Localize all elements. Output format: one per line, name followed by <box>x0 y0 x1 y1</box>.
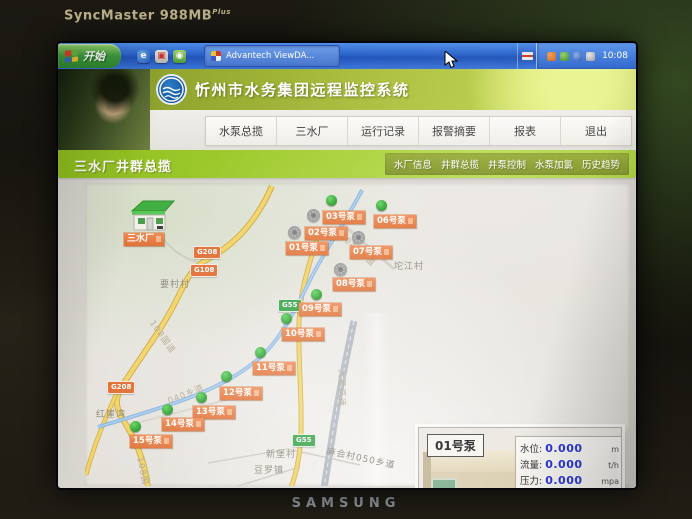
water-group-logo <box>158 76 185 103</box>
section-title: 三水厂井群总揽 <box>74 156 172 175</box>
nav-bar: 水泵总揽三水厂运行记录报警摘要报表退出 <box>150 110 636 150</box>
well-tree-icon[interactable] <box>255 347 266 358</box>
pump-gear-icon[interactable] <box>334 263 347 276</box>
pump-badge-4[interactable]: 06号泵 <box>374 215 416 228</box>
quick-launch-bar: e ▣ ◉ <box>137 50 186 63</box>
tab-5[interactable]: 报表 <box>490 117 561 145</box>
pump-gear-icon[interactable] <box>352 231 365 244</box>
taskbar-clock: 10:08 <box>602 51 628 61</box>
well-tree-icon[interactable] <box>130 421 141 432</box>
pump-detail-panel: 01号泵 水位:0.000m流量:0.000t/h压力:0.000mpa 泵状态… <box>418 427 622 488</box>
room-wall-left <box>423 452 431 488</box>
road-badge-G55: G55 <box>292 434 316 447</box>
pump-badge-10[interactable]: 12号泵 <box>220 387 262 400</box>
taskbar-right: 10:08 <box>517 43 636 69</box>
data-row-unit: t/h <box>608 461 619 470</box>
pump-badge-1[interactable]: 01号泵 <box>286 242 328 255</box>
monitor-brand: SyncMaster 988MBPlus <box>64 8 231 23</box>
data-row: 水位:0.000m <box>520 441 619 455</box>
tray-icon-2[interactable] <box>560 52 569 61</box>
pump-badge-12[interactable]: 14号泵 <box>162 418 204 431</box>
well-tree-icon[interactable] <box>326 195 337 206</box>
monitor-screen: 开始 e ▣ ◉ Advantech ViewDA... 10:08 <box>58 43 636 488</box>
place-label: 豆罗镇 <box>254 463 284 476</box>
water-plant-icon[interactable] <box>130 198 176 236</box>
advantech-app-icon <box>211 51 221 61</box>
road-badge-G208: G208 <box>107 381 135 394</box>
place-label: 坨江村 <box>394 259 424 272</box>
system-tray: 10:08 <box>536 43 636 69</box>
data-row-label: 流量: <box>520 457 542 471</box>
room-door <box>431 478 457 488</box>
plant-label[interactable]: 三水厂 <box>124 233 164 246</box>
content-area: 三水厂 108国道108国道040乡道040乡道大运高速要村村坨江村红崖湾新堡村… <box>58 178 636 488</box>
tab-6[interactable]: 退出 <box>561 117 631 145</box>
subnav-link-5[interactable]: 历史趋势 <box>582 157 620 171</box>
pump-badge-3[interactable]: 03号泵 <box>323 211 365 224</box>
browser-icon[interactable]: e <box>137 50 150 63</box>
taskbar-button-label: Advantech ViewDA... <box>226 51 314 61</box>
language-bar-icon[interactable] <box>517 43 536 69</box>
windows-taskbar: 开始 e ▣ ◉ Advantech ViewDA... 10:08 <box>58 43 636 69</box>
subnav-links: 水厂信息井群总揽井泵控制水泵加氯历史趋势 <box>385 153 629 175</box>
well-tree-icon[interactable] <box>196 392 207 403</box>
pump-badge-6[interactable]: 08号泵 <box>333 278 375 291</box>
tab-3[interactable]: 运行记录 <box>348 117 419 145</box>
pump-gear-icon[interactable] <box>307 209 320 222</box>
data-row: 流量:0.000t/h <box>520 457 619 471</box>
subnav-link-4[interactable]: 水泵加氯 <box>535 157 573 171</box>
data-row: 压力:0.000mpa <box>520 473 619 487</box>
road-badge-G108: G108 <box>190 264 218 277</box>
place-label: 麻会村050乡道 <box>325 444 396 471</box>
data-row-label: 压力: <box>520 473 542 487</box>
app-banner: 忻州市水务集团远程监控系统 <box>150 69 636 110</box>
pump-badge-11[interactable]: 13号泵 <box>193 406 235 419</box>
road-name-label: 108国道 <box>134 456 154 486</box>
tab-2[interactable]: 三水厂 <box>277 117 348 145</box>
pump-badge-5[interactable]: 07号泵 <box>350 246 392 259</box>
banner-photo <box>58 69 150 150</box>
road-name-label: 108国道 <box>147 318 179 356</box>
subnav-link-1[interactable]: 水厂信息 <box>394 157 432 171</box>
place-label: 要村村 <box>160 277 190 290</box>
taskbar-button-advantech[interactable]: Advantech ViewDA... <box>204 45 340 67</box>
start-button[interactable]: 开始 <box>58 44 121 68</box>
data-row-value: 0.000 <box>545 442 582 455</box>
tray-icon-3[interactable] <box>573 52 582 61</box>
subnav-bar: 三水厂井群总揽 水厂信息井群总揽井泵控制水泵加氯历史趋势 <box>58 150 636 178</box>
quicklaunch-icon-3[interactable]: ◉ <box>173 50 186 63</box>
data-row-value: 0.000 <box>545 474 582 487</box>
well-tree-icon[interactable] <box>311 289 322 300</box>
start-button-label: 开始 <box>83 48 105 64</box>
tray-icon-1[interactable] <box>547 52 556 61</box>
pump-badge-9[interactable]: 11号泵 <box>253 362 295 375</box>
pump-panel-title: 01号泵 <box>427 434 484 457</box>
pump-metrics: 水位:0.000m流量:0.000t/h压力:0.000mpa <box>515 436 622 488</box>
data-row-unit: mpa <box>601 477 619 486</box>
well-tree-icon[interactable] <box>281 313 292 324</box>
data-row-unit: m <box>611 445 619 454</box>
windows-flag-icon <box>65 49 78 62</box>
pump-badge-7[interactable]: 09号泵 <box>299 303 341 316</box>
tab-4[interactable]: 报警摘要 <box>419 117 490 145</box>
road-badge-G208: G208 <box>193 246 221 259</box>
road-name-label: 大运高速 <box>336 369 348 407</box>
monitor-brand-sup: Plus <box>212 8 231 16</box>
well-tree-icon[interactable] <box>376 200 387 211</box>
pump-badge-13[interactable]: 15号泵 <box>130 435 172 448</box>
well-tree-icon[interactable] <box>221 371 232 382</box>
data-row-value: 0.000 <box>545 458 582 471</box>
data-row-label: 水位: <box>520 441 542 455</box>
well-tree-icon[interactable] <box>162 404 173 415</box>
pump-gear-icon[interactable] <box>288 226 301 239</box>
pump-badge-2[interactable]: 02号泵 <box>305 227 347 240</box>
place-label: 红崖湾 <box>96 407 126 420</box>
quicklaunch-icon-2[interactable]: ▣ <box>155 50 168 63</box>
tray-icon-4[interactable] <box>586 52 595 61</box>
tab-1[interactable]: 水泵总揽 <box>206 117 277 145</box>
nav-tabs: 水泵总揽三水厂运行记录报警摘要报表退出 <box>205 116 632 146</box>
page-title: 忻州市水务集团远程监控系统 <box>195 79 410 100</box>
subnav-link-2[interactable]: 井群总揽 <box>441 157 479 171</box>
road-badge-G55: G55 <box>278 299 302 312</box>
place-label: 新堡村 <box>266 447 296 460</box>
subnav-link-3[interactable]: 井泵控制 <box>488 157 526 171</box>
pump-badge-8[interactable]: 10号泵 <box>282 328 324 341</box>
monitor-logo-samsung: SAMSUNG <box>292 496 401 511</box>
